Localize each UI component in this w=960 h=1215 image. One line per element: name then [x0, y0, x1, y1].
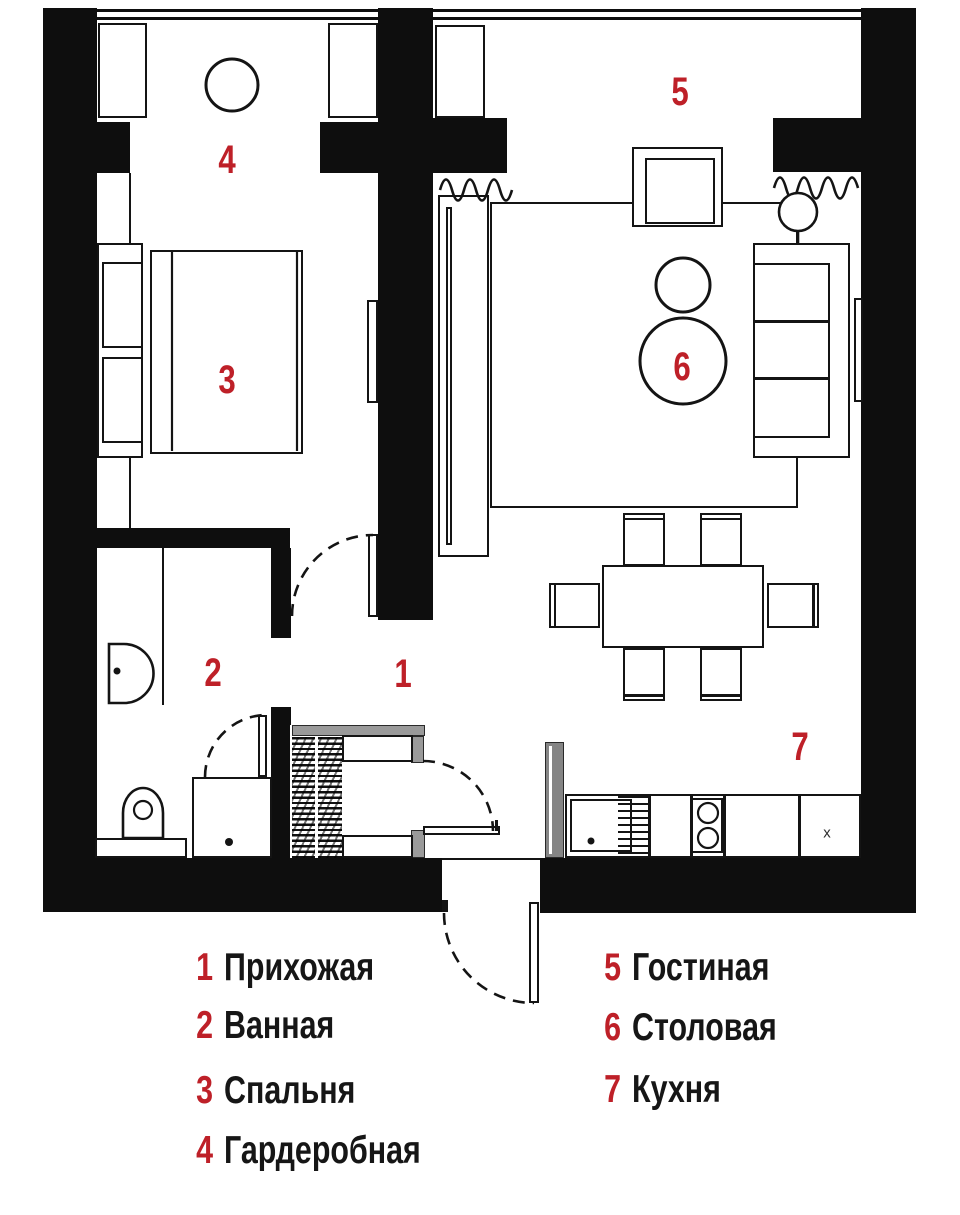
counter-drainer: [618, 796, 648, 855]
bathroom-divider-line: [162, 548, 164, 705]
legend-label: Ванная: [224, 1006, 334, 1045]
kitchen-partition-gap-line: [549, 746, 552, 854]
wall-central-vertical: [378, 8, 433, 620]
wall-bottom-right-exterior: [540, 858, 916, 913]
wardrobe-cabinet-right: [328, 23, 378, 118]
wardrobe-stool: [206, 59, 258, 111]
legend-label: Кухня: [632, 1070, 721, 1109]
wall-bathroom-post-lower: [271, 707, 291, 858]
wall-bathroom-post-upper: [271, 548, 291, 638]
dining-chair-north-1: [623, 513, 665, 566]
dining-table: [602, 565, 764, 648]
wall-right-exterior: [861, 8, 916, 913]
legend-num: 3: [187, 1071, 213, 1110]
wall-livingroom-right-stub: [773, 118, 861, 172]
entrance-door-arc: [444, 913, 534, 1003]
dining-chair-south-1: [623, 648, 665, 701]
rug-outline: [490, 202, 798, 508]
floor-plan: x: [0, 0, 960, 1215]
tv: [645, 158, 715, 224]
legend-label: Гардеробная: [224, 1131, 421, 1170]
sofa-seat: [753, 263, 830, 438]
balcony-cabinet: [435, 25, 485, 118]
kitchen-counter: [565, 794, 861, 858]
dining-chair-east: [767, 583, 819, 628]
wall-top-exterior-window-line: [95, 9, 915, 20]
sofa-cushion-line-1: [755, 320, 828, 323]
bed: [150, 250, 303, 454]
hall-door-leaf: [423, 826, 500, 835]
bathroom-sink: [109, 644, 154, 703]
wall-left-exterior: [43, 8, 97, 912]
hall-door-arc: [423, 761, 493, 831]
kitchen-partition: [545, 742, 564, 858]
window-radiator: [854, 298, 863, 402]
legend-label: Столовая: [632, 1008, 777, 1047]
wall-bathroom-top: [97, 528, 290, 548]
bathroom-door-leaf: [258, 715, 267, 777]
counter-divider-3: [723, 796, 726, 856]
wall-livingroom-left-stub: [433, 118, 507, 173]
dining-chair-west: [549, 583, 600, 628]
bathroom-sink-faucet-dot: [114, 668, 121, 675]
legend-row-bedroom: 3 Спальня: [180, 1071, 392, 1110]
wardrobe-cabinet-left: [98, 23, 147, 118]
dining-chair-south-2: [700, 648, 742, 701]
room-marker-bedroom: 3: [218, 360, 235, 400]
counter-divider-4: [798, 796, 801, 856]
legend-num: 6: [595, 1008, 621, 1047]
bedroom-door-leaf: [368, 534, 378, 617]
nightstand-lower: [102, 357, 143, 443]
counter-dishwasher-mark: x: [823, 825, 831, 842]
wall-wardrobe-left-stub: [97, 122, 130, 173]
legend-label: Гостиная: [632, 948, 769, 987]
toilet: [123, 788, 163, 838]
room-marker-kitchen: 7: [791, 727, 808, 767]
bathroom-cabinet: [95, 838, 187, 858]
sofa-cushion-line-2: [755, 377, 828, 380]
legend-num: 1: [187, 948, 213, 987]
legend-num: 5: [595, 948, 621, 987]
hall-wardrobe-hatch-gap: [315, 737, 318, 858]
legend-label: Спальня: [224, 1071, 355, 1110]
legend-row-bathroom: 2 Ванная: [180, 1006, 365, 1045]
toilet-bowl-circle: [134, 801, 152, 819]
bedroom-pocket-door-panel: [367, 300, 378, 403]
legend-row-kitchen: 7 Кухня: [588, 1070, 746, 1109]
room-marker-wardrobe: 4: [218, 140, 235, 180]
legend-label: Прихожая: [224, 948, 374, 987]
legend-row-wardrobe: 4 Гардеробная: [180, 1131, 476, 1170]
entrance-door-stop: [442, 900, 448, 912]
legend-num: 7: [595, 1070, 621, 1109]
counter-stove: [691, 798, 723, 853]
entrance-threshold-line: [442, 858, 540, 860]
shower-cabin: [192, 777, 272, 858]
nightstand-upper: [102, 262, 143, 348]
entrance-door-leaf: [529, 902, 539, 1003]
bedroom-door-arc: [292, 535, 373, 616]
legend-row-livingroom: 5 Гостиная: [588, 948, 808, 987]
curtain-right-icon: [774, 178, 858, 199]
room-marker-diningroom: 6: [673, 347, 690, 387]
legend-num: 4: [187, 1131, 213, 1170]
hall-wardrobe-shelf-bottom: [342, 835, 413, 858]
counter-divider-1: [648, 796, 651, 856]
living-shelf-inner-line: [446, 207, 452, 545]
hall-wardrobe-shelf-top: [342, 735, 413, 762]
legend-num: 2: [187, 1006, 213, 1045]
room-marker-livingroom: 5: [671, 72, 688, 112]
room-marker-hallway: 1: [394, 654, 411, 694]
wall-bottom-left-exterior: [95, 858, 442, 912]
wall-wardrobe-right-stub: [320, 122, 378, 173]
room-marker-bathroom: 2: [204, 653, 221, 693]
hall-door-tick: [495, 820, 498, 831]
legend-row-diningroom: 6 Столовая: [588, 1008, 818, 1047]
dining-chair-north-2: [700, 513, 742, 566]
legend-row-hallway: 1 Прихожая: [180, 948, 416, 987]
